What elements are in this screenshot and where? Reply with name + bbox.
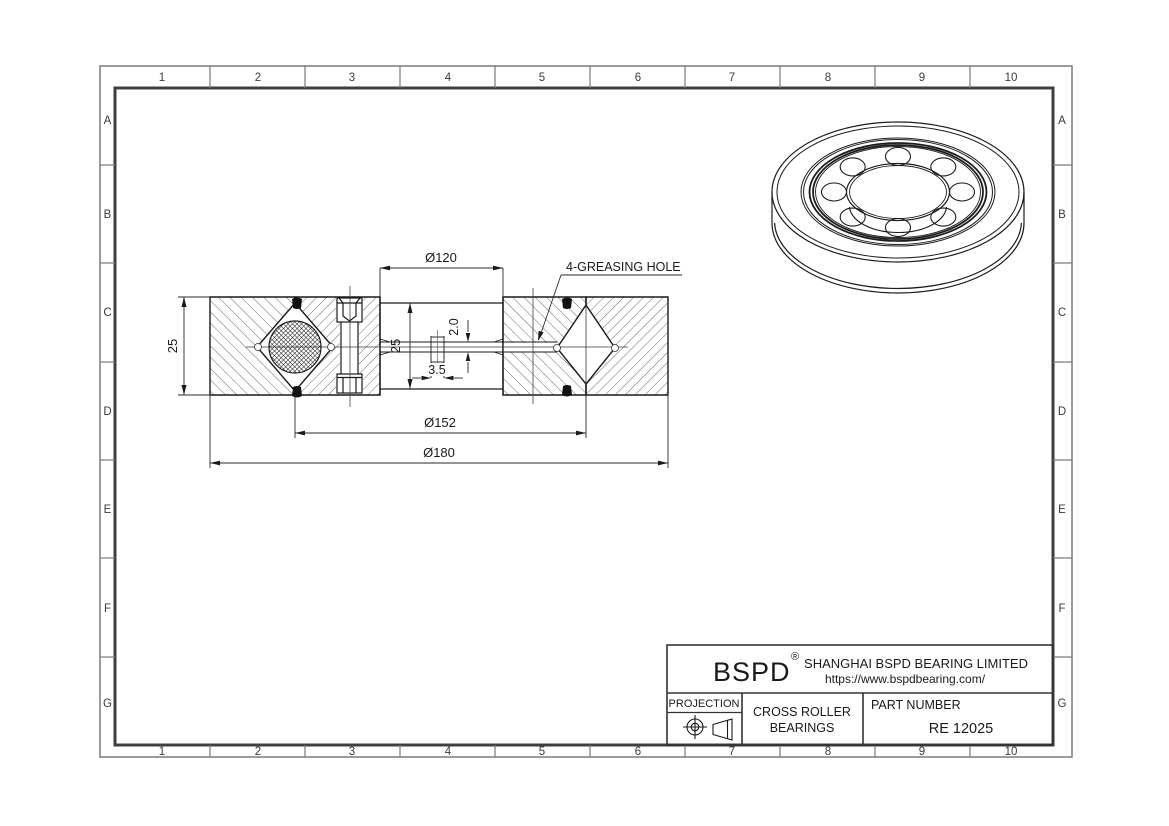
company-name: SHANGHAI BSPD BEARING LIMITED <box>804 656 1028 671</box>
zone-col-bottom-3: 3 <box>349 746 355 758</box>
zone-col-top-2: 2 <box>255 72 261 84</box>
frame-column-ticks <box>210 66 970 757</box>
brand-logo-text: BSPD <box>713 657 791 687</box>
zone-col-top-7: 7 <box>729 72 735 84</box>
zone-row-left-F: F <box>104 603 111 615</box>
zone-col-bottom-7: 7 <box>729 746 735 758</box>
dim-inner-height: 25 <box>388 339 403 353</box>
dim-bore-dia: Ø120 <box>425 250 457 265</box>
section-view <box>210 286 668 407</box>
part-number-value: RE 12025 <box>929 721 994 737</box>
zone-col-bottom-5: 5 <box>539 746 545 758</box>
zone-col-top-4: 4 <box>445 72 452 84</box>
zone-col-bottom-4: 4 <box>445 746 452 758</box>
zone-col-top-5: 5 <box>539 72 545 84</box>
product-name-line1: CROSS ROLLER <box>753 705 851 719</box>
zone-row-left-B: B <box>104 209 112 221</box>
zone-row-left-E: E <box>104 504 112 516</box>
crossed-roller-left <box>269 321 321 373</box>
drawing-sheet: 1122334455667788991010AABBCCDDEEFFGG <box>0 0 1169 826</box>
part-number-label: PART NUMBER <box>871 698 961 712</box>
zone-col-top-10: 10 <box>1005 72 1018 84</box>
dim-grease-hole-width: 3.5 <box>428 363 445 377</box>
company-website: https://www.bspdbearing.com/ <box>825 672 986 686</box>
zone-col-top-3: 3 <box>349 72 355 84</box>
zone-row-left-A: A <box>104 115 112 127</box>
zone-row-right-G: G <box>1058 698 1067 710</box>
dim-grease-hole-height: 2.0 <box>447 318 461 335</box>
dim-section-height: 25 <box>165 339 180 353</box>
outer-ring-right-section <box>586 297 668 395</box>
grease-note-label: 4-GREASING HOLE <box>566 260 681 274</box>
zone-col-bottom-1: 1 <box>159 746 165 758</box>
zone-col-bottom-2: 2 <box>255 746 261 758</box>
zone-col-bottom-9: 9 <box>919 746 925 758</box>
zone-row-right-B: B <box>1058 209 1066 221</box>
zone-col-top-1: 1 <box>159 72 165 84</box>
bore-inner-wall-arc <box>850 180 947 233</box>
zone-row-right-D: D <box>1058 406 1066 418</box>
frame-inner-border <box>115 88 1053 745</box>
product-name-line2: BEARINGS <box>770 721 835 735</box>
zone-row-right-A: A <box>1058 115 1066 127</box>
zone-col-top-8: 8 <box>825 72 831 84</box>
dim-outer-dia: Ø180 <box>423 445 455 460</box>
zone-row-left-D: D <box>103 406 111 418</box>
zone-col-bottom-8: 8 <box>825 746 831 758</box>
isometric-view <box>772 122 1024 293</box>
registered-mark: ® <box>791 651 799 663</box>
zone-row-left-C: C <box>103 307 111 319</box>
zone-col-bottom-10: 10 <box>1005 746 1018 758</box>
zone-row-left-G: G <box>103 698 112 710</box>
zone-row-right-C: C <box>1058 307 1066 319</box>
mounting-bolt-section <box>336 286 363 407</box>
projection-label: PROJECTION <box>669 698 740 710</box>
title-block: BSPD ® SHANGHAI BSPD BEARING LIMITED htt… <box>667 645 1053 745</box>
zone-col-top-6: 6 <box>635 72 641 84</box>
bolt-holes <box>822 148 975 237</box>
zone-row-right-F: F <box>1058 603 1065 615</box>
projection-symbol-icon <box>683 715 732 740</box>
zone-col-bottom-6: 6 <box>635 746 641 758</box>
zone-row-right-E: E <box>1058 504 1066 516</box>
dim-pitch-dia: Ø152 <box>424 415 456 430</box>
zone-col-top-9: 9 <box>919 72 925 84</box>
engineering-drawing-canvas: 1122334455667788991010AABBCCDDEEFFGG <box>0 0 1169 826</box>
